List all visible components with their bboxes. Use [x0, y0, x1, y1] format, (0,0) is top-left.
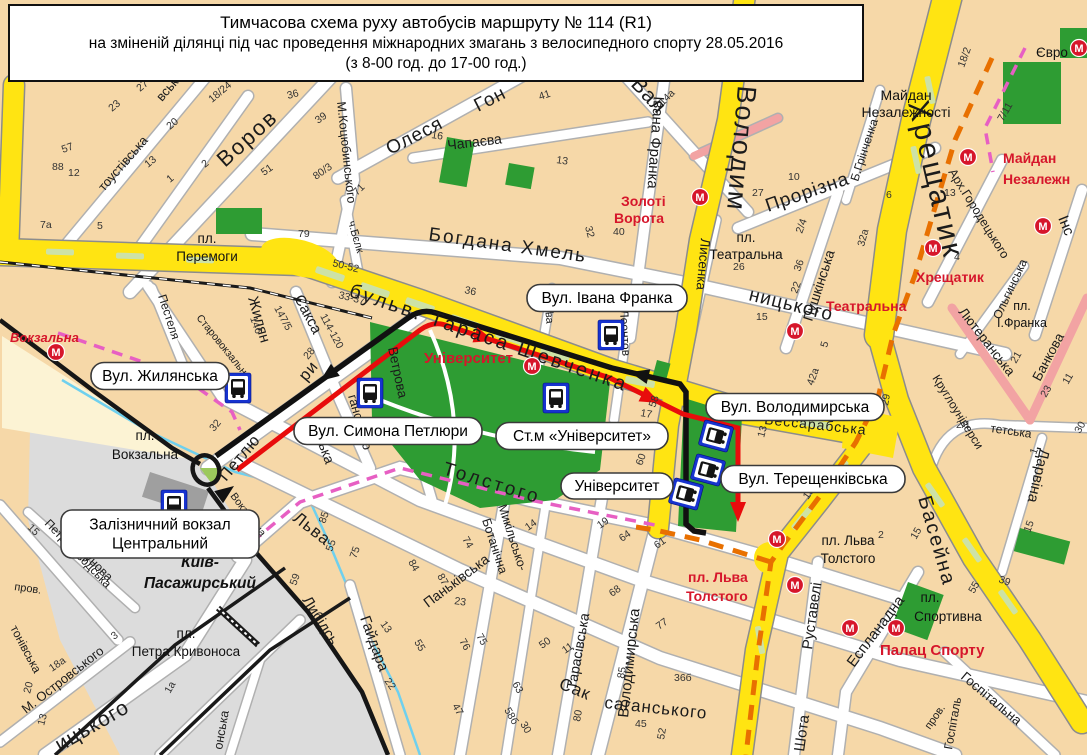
city-map: бульв. Тараса ШевченкаВолодимХрещатикБас…	[0, 0, 1087, 755]
house-number: 40	[613, 226, 625, 238]
callout-text: Університет	[575, 478, 660, 495]
metro-station-label: Майдан	[1003, 150, 1056, 166]
house-number: 27	[752, 187, 764, 199]
house-number: 13	[556, 154, 569, 168]
metro-icon-letter: М	[695, 192, 704, 204]
title-line-3: (з 8-00 год. до 17-00 год.)	[345, 55, 526, 73]
bus-glyph-wheel	[240, 394, 244, 398]
title-line-1: Тимчасова схема руху автобусів маршруту …	[220, 13, 652, 33]
area-label: пл.	[737, 230, 756, 245]
house-number: 80	[571, 709, 585, 723]
title-line-2: на зміненій ділянці під час проведення м…	[89, 35, 783, 53]
metro-icon: М	[1071, 40, 1087, 57]
metro-icon: М	[925, 240, 942, 257]
house-number: 5	[97, 220, 103, 232]
callout-text: Вул. Жилянська	[102, 368, 218, 385]
callout: Університет	[561, 473, 673, 499]
metro-icon-letter: М	[772, 534, 781, 546]
metro-icon-letter: М	[928, 243, 937, 255]
callout: Вул. Володимирська	[706, 394, 884, 421]
house-number: 85	[615, 666, 629, 680]
bus-glyph-windshield	[365, 387, 375, 393]
house-number: 79	[298, 228, 310, 240]
metro-station-label: Вокзальна	[10, 330, 79, 345]
house-number: 16	[431, 129, 444, 143]
metro-icon: М	[48, 344, 65, 361]
callout-text: Залізничний вокзал	[89, 517, 230, 534]
metro-icon-letter: М	[1074, 43, 1083, 55]
metro-icon: М	[787, 323, 804, 340]
area-label: Майдан	[880, 87, 931, 103]
metro-icon: М	[960, 149, 977, 166]
area-label: Толстого	[821, 551, 876, 566]
bus-glyph-wheel	[558, 404, 562, 408]
callout-text: Вул. Володимирська	[721, 399, 870, 416]
bus-glyph-wheel	[372, 399, 376, 403]
area-label: пл.	[921, 590, 940, 605]
bus-glyph-wheel	[550, 404, 554, 408]
callout: Ст.м «Університет»	[496, 423, 668, 450]
house-number: 2	[878, 529, 884, 541]
bus-glyph-windshield	[606, 329, 616, 335]
metro-icon-letter: М	[51, 347, 60, 359]
house-number: 36б	[674, 672, 692, 684]
callout: Вул. Терещенківська	[721, 466, 905, 493]
metro-icon: М	[769, 531, 786, 548]
house-number: 26	[733, 261, 745, 273]
area-label: пл. Льва	[821, 533, 875, 548]
metro-icon-letter: М	[790, 326, 799, 338]
bus-glyph-windshield	[169, 499, 179, 505]
bus-glyph-wheel	[613, 341, 617, 345]
area-label: пл.	[136, 428, 155, 443]
metro-station-label: Палац Спорту	[880, 642, 985, 659]
metro-icon: М	[692, 189, 709, 206]
bus-glyph-wheel	[605, 341, 609, 345]
metro-station-label: Золоті	[621, 193, 666, 209]
metro-icon: М	[1035, 218, 1052, 235]
callout-text: Вул. Терещенківська	[738, 471, 888, 488]
metro-icon-letter: М	[891, 623, 900, 635]
callout-text: Центральний	[112, 536, 208, 553]
metro-station-label: Незалежн	[1003, 171, 1070, 187]
metro-station-label: Університет	[424, 350, 513, 367]
metro-station-label: Толстого	[686, 588, 748, 604]
house-number: 17	[639, 407, 653, 421]
area-label: Пасажирський	[144, 575, 257, 592]
house-number: 13	[944, 187, 956, 199]
metro-icon-letter: М	[790, 580, 799, 592]
area-label: пл.	[198, 231, 217, 246]
callout: Вул. Жилянська	[91, 363, 229, 390]
house-number: 4	[954, 251, 960, 263]
house-number: 10	[788, 171, 800, 183]
street-peremohy	[0, 252, 300, 262]
metro-station-label: пл. Льва	[688, 569, 748, 585]
house-number: 15	[756, 311, 768, 323]
area-label: Театральна	[709, 247, 783, 262]
callout-text: Вул. Симона Петлюри	[308, 423, 468, 440]
area-label: Вокзальна	[112, 447, 179, 462]
metro-icon: М	[787, 577, 804, 594]
area-label: І.Франка	[997, 316, 1047, 330]
area-label: Перемоги	[176, 249, 237, 264]
house-number: 2/1	[956, 419, 971, 431]
house-number: 12	[68, 167, 80, 179]
house-number: 52	[655, 727, 669, 741]
bus-stop-icon	[543, 383, 569, 413]
callout-text: Ст.м «Університет»	[513, 428, 651, 445]
map-screenshot: бульв. Тараса ШевченкаВолодимХрещатикБас…	[0, 0, 1087, 755]
metro-icon: М	[842, 620, 859, 637]
metro-station-label: Ворота	[614, 210, 664, 226]
bus-glyph-wheel	[232, 394, 236, 398]
metro-icon: М	[524, 358, 541, 375]
callout-text: Вул. Івана Франка	[541, 290, 672, 307]
area-label: Незалежності	[862, 104, 951, 120]
house-number: 7а	[40, 219, 52, 231]
house-number: 6	[886, 189, 892, 201]
area-label: пл.	[1013, 299, 1031, 313]
callout: Вул. Симона Петлюри	[294, 418, 482, 445]
callout: Залізничний вокзалЦентральний	[61, 510, 259, 558]
metro-icon: М	[888, 620, 905, 637]
metro-icon-letter: М	[1038, 221, 1047, 233]
bus-stop-icon	[357, 378, 383, 408]
area-label: Євро	[1036, 45, 1068, 60]
bus-stop-icon	[598, 320, 624, 350]
metro-station-label: Театральна	[826, 298, 907, 314]
metro-icon-letter: М	[845, 623, 854, 635]
house-number: 88	[52, 161, 64, 173]
area-label: Спортивна	[914, 609, 982, 624]
metro-icon-letter: М	[963, 152, 972, 164]
metro-station-label: Хрещатик	[916, 269, 985, 285]
bus-glyph-windshield	[233, 382, 243, 388]
bus-glyph-windshield	[551, 392, 561, 398]
metro-icon-letter: М	[527, 361, 536, 373]
callout: Вул. Івана Франка	[527, 285, 687, 312]
house-number: 45	[635, 718, 647, 730]
area-label: пл.	[177, 626, 196, 641]
house-number: 23	[454, 595, 467, 609]
bus-glyph-wheel	[364, 399, 368, 403]
area-label: Петра Кривоноса	[132, 644, 241, 659]
title-box: Тимчасова схема руху автобусів маршруту …	[8, 4, 864, 82]
